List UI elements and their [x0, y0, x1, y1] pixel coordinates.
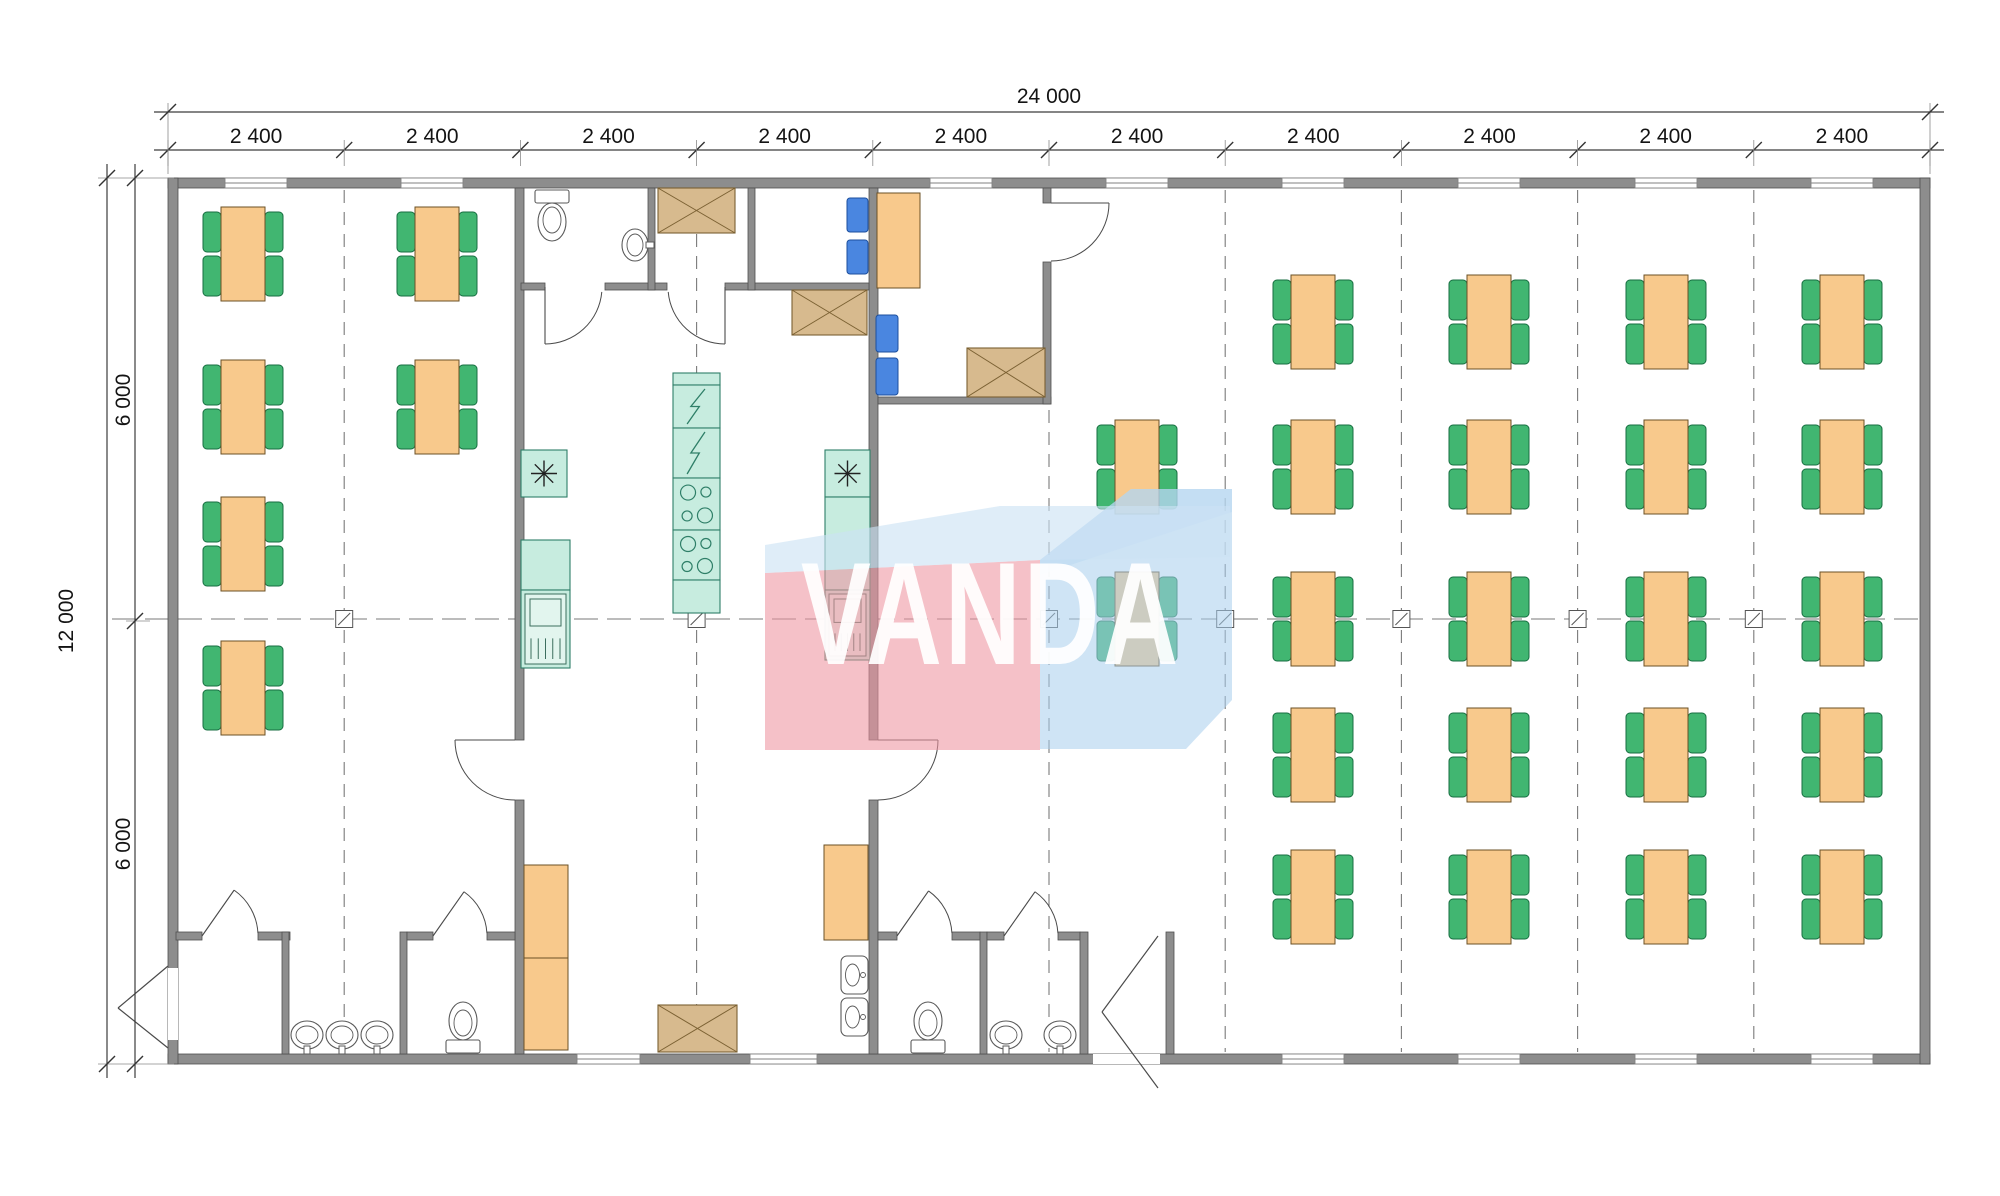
- chair: [265, 546, 283, 586]
- chair: [459, 212, 477, 252]
- storage-cabinet: [524, 958, 568, 1050]
- chair: [1511, 577, 1529, 617]
- chair: [459, 409, 477, 449]
- left-total-dimension-label: 12 000: [55, 589, 78, 653]
- chair: [1626, 713, 1644, 753]
- chair: [1626, 577, 1644, 617]
- toilet-bowl: [914, 1002, 942, 1040]
- chair: [397, 365, 415, 405]
- chair: [1511, 757, 1529, 797]
- chair: [1864, 899, 1882, 939]
- dining-table: [1291, 275, 1335, 369]
- chair: [1449, 713, 1467, 753]
- faucet-icon: [374, 1046, 380, 1054]
- chair: [1688, 757, 1706, 797]
- faucet-icon: [1003, 1046, 1009, 1054]
- chair: [1864, 713, 1882, 753]
- chair: [1335, 425, 1353, 465]
- cooktop: [673, 478, 720, 530]
- chair: [1273, 577, 1291, 617]
- wall-segment: [1080, 932, 1088, 1054]
- wall-segment: [878, 397, 1051, 404]
- chair: [1626, 469, 1644, 509]
- chair: [203, 546, 221, 586]
- chair: [1335, 469, 1353, 509]
- toilet-tank: [911, 1040, 945, 1053]
- wall-segment: [748, 188, 755, 290]
- dining-table: [1644, 850, 1688, 944]
- chair: [265, 646, 283, 686]
- chair: [1626, 855, 1644, 895]
- chair: [1688, 713, 1706, 753]
- chair: [1335, 280, 1353, 320]
- toilet-bowl: [449, 1002, 477, 1040]
- wall-segment: [487, 932, 515, 940]
- chair: [203, 365, 221, 405]
- segment-dimension-label: 2 400: [935, 125, 988, 148]
- chair: [1511, 855, 1529, 895]
- chair: [1688, 899, 1706, 939]
- chair: [1273, 713, 1291, 753]
- chair: [1449, 757, 1467, 797]
- chair: [1335, 899, 1353, 939]
- wall-segment: [648, 188, 655, 290]
- chair: [1802, 469, 1820, 509]
- chair: [1626, 899, 1644, 939]
- door-leaf: [897, 891, 929, 936]
- chair: [1273, 899, 1291, 939]
- door-swing-arc: [545, 292, 602, 344]
- chair: [1335, 757, 1353, 797]
- chair: [1449, 855, 1467, 895]
- segment-dimension-label: 2 400: [230, 125, 283, 148]
- dining-table: [1467, 850, 1511, 944]
- dining-table: [1820, 850, 1864, 944]
- dining-table: [1644, 572, 1688, 666]
- chair: [459, 365, 477, 405]
- chair: [1688, 324, 1706, 364]
- chair: [1802, 425, 1820, 465]
- door-leaf: [202, 890, 234, 936]
- chair: [265, 690, 283, 730]
- chair: [1688, 469, 1706, 509]
- door-swing-arc: [234, 890, 258, 933]
- office-chair: [876, 358, 898, 395]
- toilet-tank: [446, 1040, 480, 1053]
- chair: [1802, 855, 1820, 895]
- chair: [1335, 324, 1353, 364]
- segment-dimension-label: 2 400: [1639, 125, 1692, 148]
- segment-dimension-label: 6 000: [112, 374, 135, 427]
- dining-table: [1467, 572, 1511, 666]
- chair: [1273, 280, 1291, 320]
- door-leaf: [433, 892, 464, 936]
- wall-segment: [987, 932, 1004, 940]
- dining-table: [1820, 708, 1864, 802]
- kitchen-counter: [521, 540, 570, 590]
- segment-dimension-label: 2 400: [582, 125, 635, 148]
- chair: [1626, 280, 1644, 320]
- segment-dimension-label: 2 400: [406, 125, 459, 148]
- chair: [1864, 577, 1882, 617]
- chair: [397, 212, 415, 252]
- dining-table: [221, 207, 265, 301]
- wall-segment: [400, 932, 407, 1054]
- chair: [1626, 757, 1644, 797]
- wall-segment: [168, 178, 178, 1064]
- office-chair: [847, 240, 868, 274]
- chair: [1626, 621, 1644, 661]
- office-chair: [847, 198, 868, 232]
- chair: [1097, 425, 1115, 465]
- chair: [1864, 757, 1882, 797]
- chair: [1802, 621, 1820, 661]
- door-swing-arc: [929, 891, 952, 933]
- chair: [203, 690, 221, 730]
- dining-table: [221, 641, 265, 735]
- chair: [1335, 621, 1353, 661]
- chair: [265, 502, 283, 542]
- wall-segment: [407, 932, 433, 940]
- chair: [203, 256, 221, 296]
- wall-segment: [878, 932, 897, 940]
- kitchen-counter: [673, 580, 720, 613]
- door-leaf: [118, 966, 168, 1008]
- chair: [1273, 469, 1291, 509]
- wall-segment: [1920, 178, 1930, 1064]
- dining-table: [1467, 708, 1511, 802]
- cooktop: [673, 530, 720, 580]
- dining-table: [1467, 275, 1511, 369]
- chair: [1159, 425, 1177, 465]
- door-leaf: [1102, 1012, 1158, 1088]
- chair: [1688, 855, 1706, 895]
- chair: [1511, 899, 1529, 939]
- office-desk: [877, 193, 920, 288]
- storage-cabinet: [824, 845, 868, 940]
- faucet-icon: [339, 1046, 345, 1054]
- floor-plan-page: VANDA 24 000 12 000 2 4002 4002 4002 400…: [0, 0, 2000, 1196]
- wall-segment: [176, 932, 202, 940]
- faucet-icon: [646, 242, 654, 248]
- chair: [1802, 757, 1820, 797]
- chair: [1511, 280, 1529, 320]
- chair: [1864, 621, 1882, 661]
- dining-table: [221, 497, 265, 591]
- dining-table: [415, 207, 459, 301]
- dining-table: [1820, 275, 1864, 369]
- chair: [1273, 324, 1291, 364]
- storage-cabinet: [524, 865, 568, 958]
- chair: [1864, 855, 1882, 895]
- segment-dimension-label: 2 400: [1287, 125, 1340, 148]
- chair: [1273, 757, 1291, 797]
- chair: [1335, 577, 1353, 617]
- door-swing-arc: [1035, 892, 1058, 933]
- toilet-tank: [535, 190, 569, 203]
- door-opening: [168, 968, 178, 1040]
- door-leaf: [118, 1008, 168, 1048]
- chair: [1802, 713, 1820, 753]
- door-swing-arc: [1051, 203, 1109, 261]
- chair: [1688, 425, 1706, 465]
- chair: [1273, 621, 1291, 661]
- chair: [1864, 280, 1882, 320]
- dining-table: [221, 360, 265, 454]
- dining-table: [1644, 275, 1688, 369]
- chair: [203, 502, 221, 542]
- chair: [1688, 621, 1706, 661]
- chair: [1449, 899, 1467, 939]
- chair: [203, 212, 221, 252]
- wall-segment: [869, 800, 878, 1054]
- faucet-icon: [1057, 1046, 1063, 1054]
- chair: [1449, 469, 1467, 509]
- top-total-dimension-label: 24 000: [1017, 85, 1081, 108]
- door-swing-arc: [455, 740, 515, 800]
- chair: [1511, 713, 1529, 753]
- segment-dimension-label: 2 400: [1111, 125, 1164, 148]
- dining-table: [1291, 850, 1335, 944]
- chair: [1864, 469, 1882, 509]
- dining-table: [1644, 420, 1688, 514]
- dining-table: [1467, 420, 1511, 514]
- dining-table: [1291, 708, 1335, 802]
- segment-dimension-label: 6 000: [112, 818, 135, 871]
- chair: [1802, 899, 1820, 939]
- chair: [1273, 425, 1291, 465]
- wall-segment: [1043, 188, 1051, 203]
- toilet-bowl: [538, 203, 566, 241]
- chair: [1449, 621, 1467, 661]
- door-swing-arc: [668, 292, 725, 344]
- door-swing-arc: [464, 892, 487, 933]
- faucet-icon: [304, 1046, 310, 1054]
- door-leaf: [1102, 936, 1158, 1012]
- chair: [397, 409, 415, 449]
- chair: [397, 256, 415, 296]
- dining-table: [1291, 420, 1335, 514]
- dining-table: [1820, 572, 1864, 666]
- chair: [1335, 713, 1353, 753]
- chair: [1864, 425, 1882, 465]
- segment-dimension-label: 2 400: [1463, 125, 1516, 148]
- chair: [265, 409, 283, 449]
- chair: [1511, 621, 1529, 661]
- door-opening: [1093, 1054, 1160, 1064]
- wall-segment: [1058, 932, 1080, 940]
- wall-segment: [980, 932, 987, 1054]
- chair: [1511, 469, 1529, 509]
- chair: [1097, 469, 1115, 509]
- watermark-text: VANDA: [801, 532, 1181, 695]
- segment-dimension-label: 2 400: [758, 125, 811, 148]
- chair: [1802, 280, 1820, 320]
- chair: [1273, 855, 1291, 895]
- chair: [1688, 280, 1706, 320]
- chair: [1626, 425, 1644, 465]
- dining-table: [1820, 420, 1864, 514]
- kitchen-counter: [673, 373, 720, 385]
- chair: [1626, 324, 1644, 364]
- chair: [1449, 280, 1467, 320]
- chair: [265, 365, 283, 405]
- door-leaf: [1004, 892, 1035, 936]
- office-chair: [876, 315, 898, 352]
- chair: [1802, 577, 1820, 617]
- chair: [1449, 425, 1467, 465]
- wall-segment: [605, 283, 667, 290]
- chair: [203, 646, 221, 686]
- chair: [1449, 324, 1467, 364]
- chair: [1449, 577, 1467, 617]
- chair: [265, 256, 283, 296]
- chair: [1335, 855, 1353, 895]
- chair: [1511, 425, 1529, 465]
- chair: [1511, 324, 1529, 364]
- chair: [265, 212, 283, 252]
- wall-segment: [725, 283, 869, 290]
- dining-table: [1644, 708, 1688, 802]
- wall-segment: [521, 283, 545, 290]
- dining-table: [415, 360, 459, 454]
- chair: [459, 256, 477, 296]
- wall-segment: [282, 932, 289, 1054]
- chair: [1688, 577, 1706, 617]
- wall-segment: [952, 932, 980, 940]
- floor-plan-drawing: VANDA 24 000 12 000 2 4002 4002 4002 400…: [0, 0, 2000, 1196]
- dining-table: [1291, 572, 1335, 666]
- wall-segment: [1166, 932, 1174, 1054]
- wall-segment: [515, 800, 524, 1054]
- chair: [1802, 324, 1820, 364]
- chair: [203, 409, 221, 449]
- segment-dimension-label: 2 400: [1816, 125, 1869, 148]
- chair: [1864, 324, 1882, 364]
